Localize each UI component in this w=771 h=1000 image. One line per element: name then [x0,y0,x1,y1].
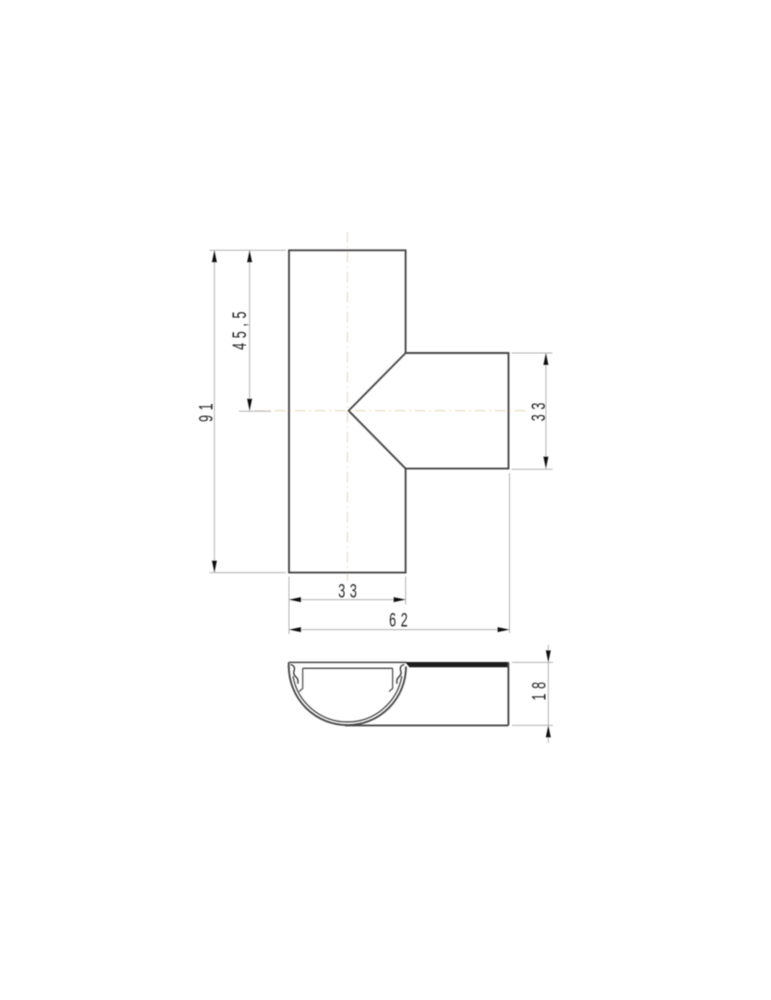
svg-text:91: 91 [196,399,217,422]
svg-text:33: 33 [338,581,361,602]
svg-text:62: 62 [389,610,412,631]
svg-text:45,5: 45,5 [229,307,250,350]
svg-text:33: 33 [528,398,549,421]
svg-text:18: 18 [529,677,550,700]
